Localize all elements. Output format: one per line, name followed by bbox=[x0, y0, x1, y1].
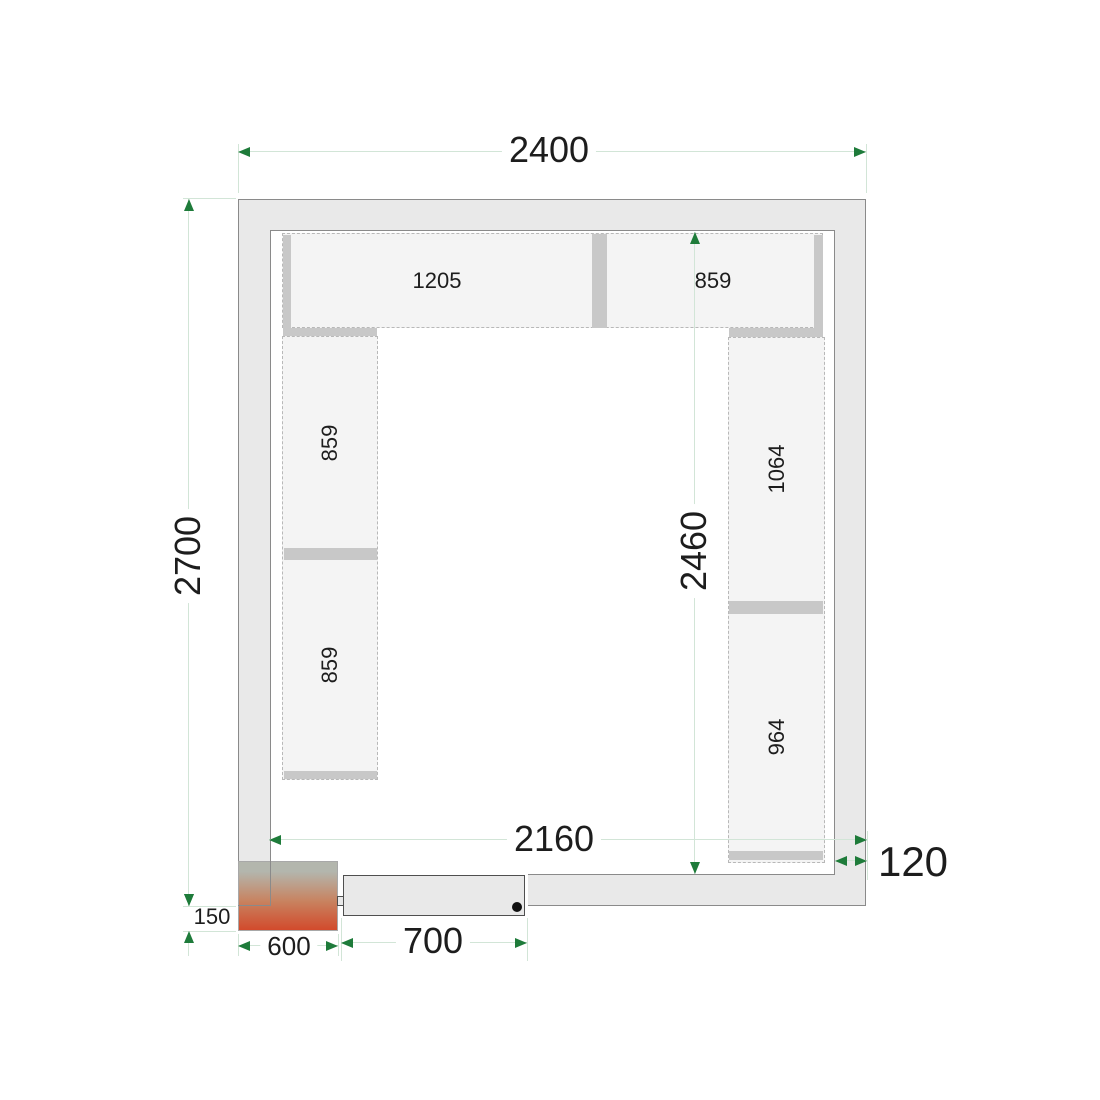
wall-corner-line-0 bbox=[270, 861, 271, 906]
dim-inner-width-ext-0 bbox=[867, 831, 868, 880]
dim-unit-width-label: 600 bbox=[260, 932, 317, 960]
condensing-unit bbox=[238, 861, 338, 931]
dim-outer-width-arrow-0 bbox=[238, 147, 250, 157]
shelf-label-4: 1064 bbox=[766, 445, 788, 494]
wall-corner-line-1 bbox=[238, 905, 271, 906]
shelf-bar-right-bottom-cap bbox=[729, 851, 823, 860]
dim-unit-width-arrow-1 bbox=[326, 941, 338, 951]
dim-door-width-ext-1 bbox=[527, 918, 528, 961]
shelf-label-3: 859 bbox=[319, 647, 341, 684]
dim-outer-width-ext-1 bbox=[866, 144, 867, 193]
dim-inner-depth-label: 2460 bbox=[675, 504, 713, 598]
dim-outer-depth-arrow-0 bbox=[184, 199, 194, 211]
dim-unit-protrusion-arrow-0 bbox=[184, 894, 194, 906]
dim-wall-thickness-arrow-1 bbox=[855, 856, 867, 866]
dim-unit-width-ext-1 bbox=[338, 934, 339, 956]
dim-outer-width-label: 2400 bbox=[502, 131, 596, 169]
shelf-bar-right-top-cap bbox=[729, 328, 823, 337]
dim-outer-depth-label: 2700 bbox=[169, 509, 207, 603]
shelf-bar-left-top-cap bbox=[283, 328, 377, 336]
dim-door-width-label: 700 bbox=[396, 922, 470, 960]
shelf-label-5: 964 bbox=[766, 719, 788, 756]
door-hinge-dot bbox=[512, 902, 522, 912]
dim-door-width-arrow-1 bbox=[515, 938, 527, 948]
dim-unit-protrusion-line-0 bbox=[188, 882, 189, 894]
shelf-label-1: 859 bbox=[695, 270, 732, 292]
shelf-bar-right-divider bbox=[729, 601, 823, 614]
door-leaf bbox=[343, 875, 525, 916]
dim-outer-width-arrow-1 bbox=[854, 147, 866, 157]
floor-plan-canvas: 1205859859859106496424002700246021601201… bbox=[0, 0, 1100, 1100]
shelf-bar-left-bottom-cap bbox=[284, 771, 377, 779]
shelf-rect-shelf-top bbox=[282, 233, 823, 328]
dim-unit-protrusion-line-1 bbox=[188, 943, 189, 956]
dim-wall-thickness-arrow-0 bbox=[835, 856, 847, 866]
dim-unit-protrusion-label: 150 bbox=[194, 906, 231, 928]
dim-unit-protrusion-arrow-1 bbox=[184, 931, 194, 943]
dim-inner-width-arrow-0 bbox=[269, 835, 281, 845]
shelf-rect-shelf-right bbox=[728, 337, 825, 863]
dim-inner-depth-arrow-1 bbox=[690, 862, 700, 874]
dim-inner-width-label: 2160 bbox=[507, 820, 601, 858]
dim-inner-width-arrow-1 bbox=[855, 835, 867, 845]
shelf-bar-top-divider bbox=[592, 234, 607, 328]
dim-wall-thickness-label: 120 bbox=[878, 841, 948, 883]
shelf-label-2: 859 bbox=[319, 425, 341, 462]
dim-inner-depth-arrow-0 bbox=[690, 232, 700, 244]
dim-door-width-arrow-0 bbox=[341, 938, 353, 948]
shelf-bar-top-right-cap bbox=[814, 235, 823, 331]
shelf-bar-left-divider bbox=[284, 548, 377, 560]
dim-unit-width-arrow-0 bbox=[238, 941, 250, 951]
shelf-label-0: 1205 bbox=[413, 270, 462, 292]
shelf-bar-top-left-cap bbox=[283, 235, 291, 328]
